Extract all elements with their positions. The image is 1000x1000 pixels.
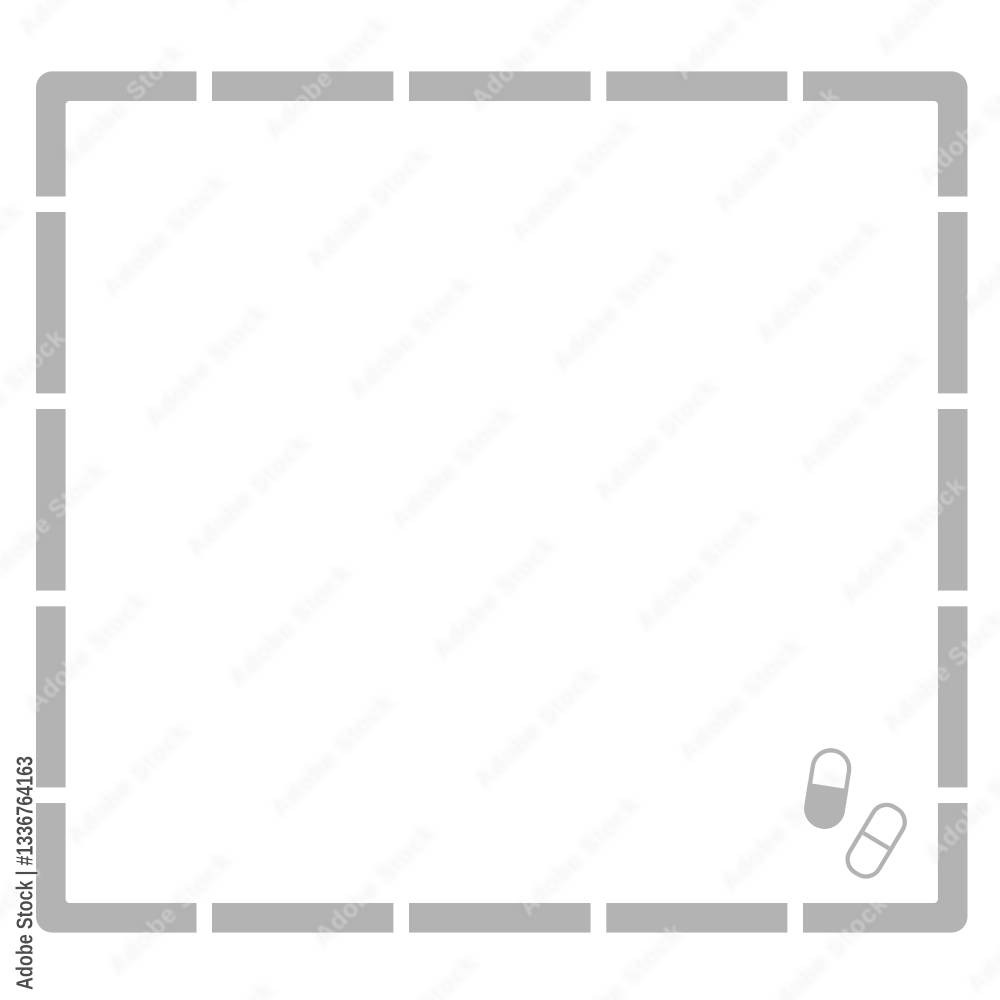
svg-text:Adobe Stock | #1336764163: Adobe Stock | #1336764163	[12, 756, 38, 990]
